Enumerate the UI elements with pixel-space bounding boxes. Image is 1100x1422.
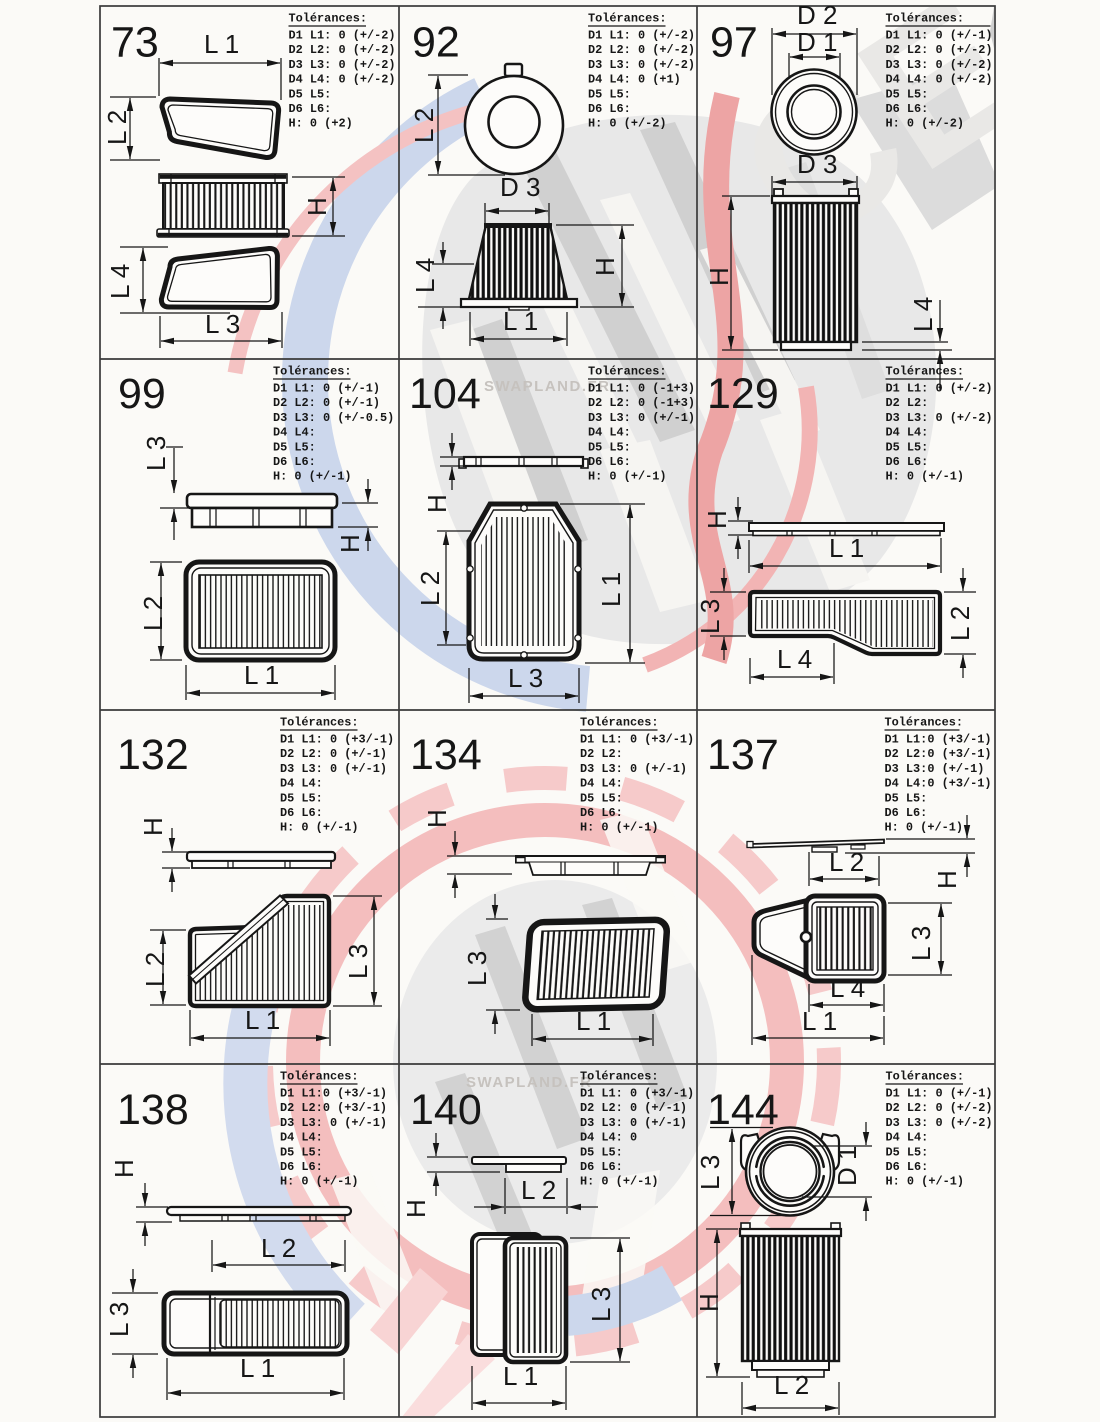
- svg-text:D 2: D 2: [797, 0, 837, 30]
- svg-text:D5 L5:: D5 L5:: [280, 791, 323, 805]
- svg-text:D 3: D 3: [797, 149, 837, 179]
- svg-text:129: 129: [707, 370, 779, 418]
- svg-text:D1 L1: 0 (+3/-1): D1 L1: 0 (+3/-1): [580, 733, 694, 747]
- svg-text:Tolérances:: Tolérances:: [886, 1070, 965, 1084]
- svg-text:L 3: L 3: [343, 944, 373, 979]
- svg-text:Tolérances:: Tolérances:: [273, 365, 352, 379]
- svg-text:H: H: [109, 1159, 139, 1178]
- svg-text:L 1: L 1: [245, 1005, 280, 1035]
- svg-text:D2 L2:: D2 L2:: [886, 396, 929, 410]
- svg-text:H: 0 (+/-1): H: 0 (+/-1): [588, 470, 667, 484]
- svg-text:D3 L3: 0 (+/-1): D3 L3: 0 (+/-1): [280, 762, 387, 776]
- svg-text:D1 L1: 0 (+/-2): D1 L1: 0 (+/-2): [886, 382, 993, 396]
- svg-text:L 4: L 4: [105, 264, 135, 299]
- svg-text:SWAPLAND.FR: SWAPLAND.FR: [466, 1074, 593, 1091]
- svg-text:L 3: L 3: [695, 599, 725, 634]
- svg-text:L 3: L 3: [205, 309, 240, 339]
- svg-text:D4 L4:: D4 L4:: [588, 426, 631, 440]
- svg-text:H: H: [302, 197, 332, 216]
- svg-text:D6 L6:: D6 L6:: [886, 455, 929, 469]
- svg-text:D5 L5:: D5 L5:: [280, 1145, 323, 1159]
- svg-text:L 1: L 1: [802, 1006, 837, 1036]
- svg-text:D6 L6:: D6 L6:: [588, 102, 631, 116]
- svg-text:D4 L4:: D4 L4:: [280, 1131, 323, 1145]
- svg-text:Tolérances:: Tolérances:: [289, 12, 368, 26]
- svg-text:H: H: [422, 809, 452, 828]
- svg-text:D5 L5:: D5 L5:: [580, 1145, 623, 1159]
- svg-text:H: H: [704, 267, 734, 286]
- svg-text:H: H: [335, 534, 365, 553]
- svg-text:D4 L4:: D4 L4:: [273, 426, 316, 440]
- svg-text:D2 L2: 0 (+/-1): D2 L2: 0 (+/-1): [580, 1101, 687, 1115]
- svg-text:D1 L1: 0 (-1+3): D1 L1: 0 (-1+3): [588, 382, 695, 396]
- svg-text:D3 L3: 0 (+/-1): D3 L3: 0 (+/-1): [280, 1116, 387, 1130]
- svg-text:L 4: L 4: [777, 644, 812, 674]
- svg-text:Tolérances:: Tolérances:: [580, 716, 659, 730]
- svg-text:D3 L3: 0 (+/-2): D3 L3: 0 (+/-2): [886, 58, 993, 72]
- svg-text:D2 L2:0 (+3/-1): D2 L2:0 (+3/-1): [885, 747, 992, 761]
- svg-text:L 2: L 2: [774, 1370, 809, 1400]
- svg-text:D1 L1: 0 (+/-2): D1 L1: 0 (+/-2): [588, 29, 695, 43]
- svg-text:L 2: L 2: [945, 606, 975, 641]
- svg-text:H: H: [702, 510, 732, 529]
- svg-text:D3 L3: 0 (+/-2): D3 L3: 0 (+/-2): [886, 411, 993, 425]
- svg-text:D 1: D 1: [797, 27, 837, 57]
- svg-text:L 4: L 4: [830, 973, 865, 1003]
- svg-text:L 2: L 2: [138, 596, 168, 631]
- svg-text:D5 L5:: D5 L5:: [580, 791, 623, 805]
- svg-text:H: H: [422, 494, 452, 513]
- svg-text:Tolérances:: Tolérances:: [588, 365, 667, 379]
- svg-text:H: 0 (+/-1): H: 0 (+/-1): [885, 821, 964, 835]
- svg-text:D5 L5:: D5 L5:: [273, 440, 316, 454]
- svg-text:D6 L6:: D6 L6:: [580, 806, 623, 820]
- svg-text:D2 L2: 0 (+/-1): D2 L2: 0 (+/-1): [280, 747, 387, 761]
- svg-text:L 2: L 2: [409, 108, 439, 143]
- svg-text:73: 73: [111, 19, 159, 67]
- svg-text:L 3: L 3: [906, 926, 936, 961]
- svg-text:H: 0 (+/-1): H: 0 (+/-1): [886, 1175, 965, 1189]
- svg-text:D4 L4: 0: D4 L4: 0: [580, 1131, 637, 1145]
- svg-text:H: H: [401, 1199, 431, 1218]
- svg-text:D3 L3: 0 (+/-0.5): D3 L3: 0 (+/-0.5): [273, 411, 394, 425]
- svg-text:140: 140: [410, 1086, 482, 1134]
- svg-text:D3 L3: 0 (+/-2): D3 L3: 0 (+/-2): [289, 58, 396, 72]
- svg-text:H: 0 (+/-1): H: 0 (+/-1): [580, 821, 659, 835]
- svg-text:97: 97: [710, 19, 758, 67]
- svg-text:D4 L4:: D4 L4:: [886, 1131, 929, 1145]
- svg-text:L 2: L 2: [102, 110, 132, 145]
- svg-text:H: 0 (+2): H: 0 (+2): [289, 117, 353, 131]
- svg-text:D6 L6:: D6 L6:: [886, 1160, 929, 1174]
- svg-text:L 4: L 4: [908, 297, 938, 332]
- svg-text:H: H: [694, 1293, 724, 1312]
- svg-text:134: 134: [410, 731, 482, 779]
- svg-text:H: 0 (+/-1): H: 0 (+/-1): [886, 470, 965, 484]
- svg-text:138: 138: [117, 1086, 189, 1134]
- svg-text:D6 L6:: D6 L6:: [580, 1160, 623, 1174]
- svg-text:D6 L6:: D6 L6:: [280, 806, 323, 820]
- svg-text:Tolérances:: Tolérances:: [580, 1070, 659, 1084]
- svg-text:D4 L4:0 (+3/-1): D4 L4:0 (+3/-1): [885, 777, 992, 791]
- svg-text:H: H: [932, 870, 962, 889]
- svg-text:D4 L4: 0 (+1): D4 L4: 0 (+1): [588, 73, 681, 87]
- svg-text:L 3: L 3: [462, 951, 492, 986]
- svg-text:D1 L1: 0 (+/-1): D1 L1: 0 (+/-1): [886, 29, 993, 43]
- svg-text:D6 L6:: D6 L6:: [273, 455, 316, 469]
- svg-text:L 2: L 2: [829, 847, 864, 877]
- svg-text:H: 0 (+/-2): H: 0 (+/-2): [588, 117, 667, 131]
- svg-text:D5 L5:: D5 L5:: [588, 87, 631, 101]
- svg-text:Tolérances:: Tolérances:: [280, 1070, 359, 1084]
- svg-text:D2 L2: 0 (+/-2): D2 L2: 0 (+/-2): [886, 1101, 993, 1115]
- svg-text:D1 L1: 0 (+3/-1): D1 L1: 0 (+3/-1): [580, 1087, 694, 1101]
- svg-text:D2 L2: 0 (-1+3): D2 L2: 0 (-1+3): [588, 396, 695, 410]
- svg-text:104: 104: [409, 370, 481, 418]
- svg-text:L 1: L 1: [829, 533, 864, 563]
- svg-text:D1 L1: 0 (+/-1): D1 L1: 0 (+/-1): [886, 1087, 993, 1101]
- svg-text:D4 L4:: D4 L4:: [280, 777, 323, 791]
- svg-text:L 2: L 2: [140, 952, 170, 987]
- svg-text:D6 L6:: D6 L6:: [289, 102, 332, 116]
- svg-text:L 3: L 3: [141, 436, 171, 471]
- svg-text:D2 L2: 0 (+/-2): D2 L2: 0 (+/-2): [886, 43, 993, 57]
- svg-text:D2 L2: 0 (+/-2): D2 L2: 0 (+/-2): [588, 43, 695, 57]
- svg-text:D1 L1: 0 (+/-1): D1 L1: 0 (+/-1): [273, 382, 380, 396]
- svg-text:H: 0 (+/-2): H: 0 (+/-2): [886, 117, 965, 131]
- svg-text:D2 L2:: D2 L2:: [580, 747, 623, 761]
- svg-text:Tolérances:: Tolérances:: [885, 716, 964, 730]
- svg-text:L 1: L 1: [204, 29, 239, 59]
- svg-text:D5 L5:: D5 L5:: [886, 1145, 929, 1159]
- svg-text:D5 L5:: D5 L5:: [886, 440, 929, 454]
- svg-text:L 1: L 1: [503, 1361, 538, 1391]
- svg-text:D1 L1:0 (+3/-1): D1 L1:0 (+3/-1): [280, 1087, 387, 1101]
- svg-text:Tolérances:: Tolérances:: [886, 12, 965, 26]
- svg-text:L 3: L 3: [695, 1155, 725, 1190]
- svg-text:137: 137: [707, 731, 779, 779]
- svg-text:D5 L5:: D5 L5:: [885, 791, 928, 805]
- svg-text:L 2: L 2: [521, 1175, 556, 1205]
- svg-text:D3 L3: 0 (+/-1): D3 L3: 0 (+/-1): [580, 1116, 687, 1130]
- svg-text:L 2: L 2: [261, 1233, 296, 1263]
- svg-text:92: 92: [412, 19, 460, 67]
- svg-text:D3 L3: 0 (+/-1): D3 L3: 0 (+/-1): [588, 411, 695, 425]
- svg-text:L 2: L 2: [415, 571, 445, 606]
- svg-text:L 3: L 3: [586, 1287, 616, 1322]
- svg-text:D3 L3:0 (+/-1): D3 L3:0 (+/-1): [885, 762, 985, 776]
- svg-text:L 1: L 1: [240, 1353, 275, 1383]
- svg-text:H: 0 (+/-1): H: 0 (+/-1): [280, 821, 359, 835]
- svg-text:D1 L1: 0 (+3/-1): D1 L1: 0 (+3/-1): [280, 733, 394, 747]
- svg-text:D6 L6:: D6 L6:: [280, 1160, 323, 1174]
- svg-text:D1 L1: 0 (+/-2): D1 L1: 0 (+/-2): [289, 29, 396, 43]
- svg-text:D4 L4: 0 (+/-2): D4 L4: 0 (+/-2): [886, 73, 993, 87]
- svg-text:D3 L3: 0 (+/-2): D3 L3: 0 (+/-2): [886, 1116, 993, 1130]
- svg-text:L 1: L 1: [596, 572, 626, 607]
- svg-text:D5 L5:: D5 L5:: [588, 440, 631, 454]
- svg-text:Tolérances:: Tolérances:: [886, 365, 965, 379]
- svg-text:D5 L5:: D5 L5:: [289, 87, 332, 101]
- svg-text:H: 0 (+/-1): H: 0 (+/-1): [273, 470, 352, 484]
- svg-text:L 3: L 3: [104, 1302, 134, 1337]
- svg-text:L 4: L 4: [410, 258, 440, 293]
- svg-text:Tolérances:: Tolérances:: [280, 716, 359, 730]
- svg-text:D2 L2: 0 (+/-1): D2 L2: 0 (+/-1): [273, 396, 380, 410]
- svg-text:D6 L6:: D6 L6:: [885, 806, 928, 820]
- svg-text:H: 0 (+/-1): H: 0 (+/-1): [280, 1175, 359, 1189]
- svg-text:H: H: [590, 257, 620, 276]
- svg-text:132: 132: [117, 731, 189, 779]
- svg-text:144: 144: [707, 1086, 779, 1134]
- svg-text:L 1: L 1: [503, 306, 538, 336]
- svg-text:L 3: L 3: [508, 663, 543, 693]
- svg-text:D3 L3: 0 (+/-1): D3 L3: 0 (+/-1): [580, 762, 687, 776]
- svg-text:L 1: L 1: [244, 660, 279, 690]
- svg-text:D 1: D 1: [832, 1146, 862, 1186]
- svg-text:D2 L2: 0 (+/-2): D2 L2: 0 (+/-2): [289, 43, 396, 57]
- svg-text:D3 L3: 0 (+/-2): D3 L3: 0 (+/-2): [588, 58, 695, 72]
- svg-text:D2 L2:0 (+3/-1): D2 L2:0 (+3/-1): [280, 1101, 387, 1115]
- svg-text:D5 L5:: D5 L5:: [886, 87, 929, 101]
- svg-text:L 1: L 1: [576, 1006, 611, 1036]
- svg-text:D4 L4: 0 (+/-2): D4 L4: 0 (+/-2): [289, 73, 396, 87]
- svg-text:D6 L6:: D6 L6:: [588, 455, 631, 469]
- svg-text:D4 L4:: D4 L4:: [886, 426, 929, 440]
- svg-text:Tolérances:: Tolérances:: [588, 12, 667, 26]
- svg-text:H: 0 (+/-1): H: 0 (+/-1): [580, 1175, 659, 1189]
- svg-text:99: 99: [118, 370, 166, 418]
- svg-text:D6 L6:: D6 L6:: [886, 102, 929, 116]
- svg-text:H: H: [138, 817, 168, 836]
- svg-text:D1 L1:0 (+3/-1): D1 L1:0 (+3/-1): [885, 733, 992, 747]
- svg-text:D4 L4:: D4 L4:: [580, 777, 623, 791]
- svg-text:D 3: D 3: [500, 172, 540, 202]
